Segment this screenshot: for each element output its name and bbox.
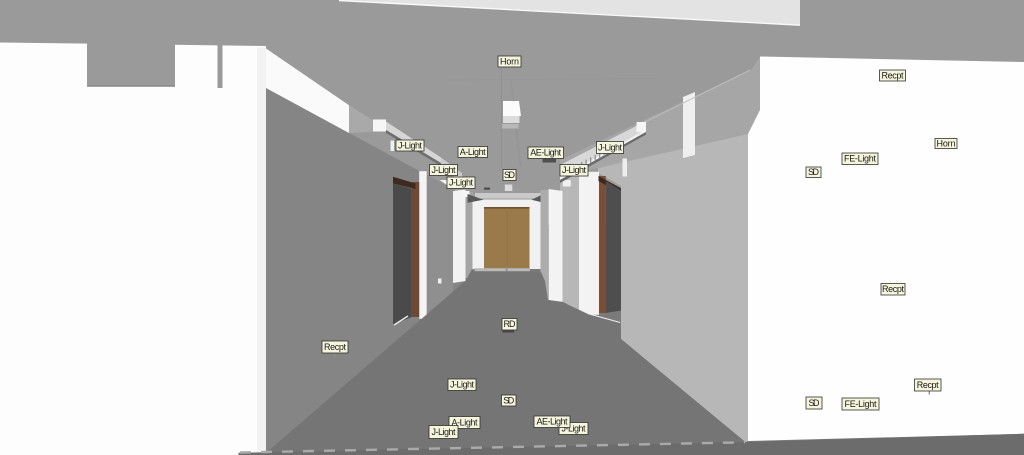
svg-text:SD: SD: [503, 396, 515, 406]
svg-text:FE-Light: FE-Light: [844, 154, 876, 164]
svg-text:Recpt: Recpt: [882, 284, 904, 294]
svg-text:J-Light: J-Light: [562, 165, 586, 175]
svg-text:Horn: Horn: [937, 139, 956, 149]
svg-text:Recpt: Recpt: [324, 342, 346, 352]
svg-text:J-Light: J-Light: [450, 380, 474, 390]
svg-text:J-Light: J-Light: [398, 141, 422, 151]
svg-text:J-Light: J-Light: [449, 178, 473, 188]
svg-text:SD: SD: [809, 398, 821, 408]
svg-text:Horn: Horn: [500, 57, 519, 67]
svg-text:SD: SD: [808, 167, 820, 177]
svg-text:J-Light: J-Light: [432, 427, 456, 437]
svg-text:J-Light: J-Light: [432, 165, 456, 175]
svg-text:AE-Light: AE-Light: [537, 417, 568, 427]
svg-text:RD: RD: [504, 319, 517, 329]
svg-text:Recpt: Recpt: [882, 71, 904, 81]
svg-text:SD: SD: [504, 170, 516, 180]
svg-text:J-Light: J-Light: [598, 143, 622, 153]
svg-text:FE-Light: FE-Light: [845, 399, 877, 409]
svg-text:Recpt: Recpt: [917, 380, 939, 390]
svg-text:AE-Light: AE-Light: [530, 148, 561, 158]
svg-text:A-Light: A-Light: [460, 147, 486, 157]
